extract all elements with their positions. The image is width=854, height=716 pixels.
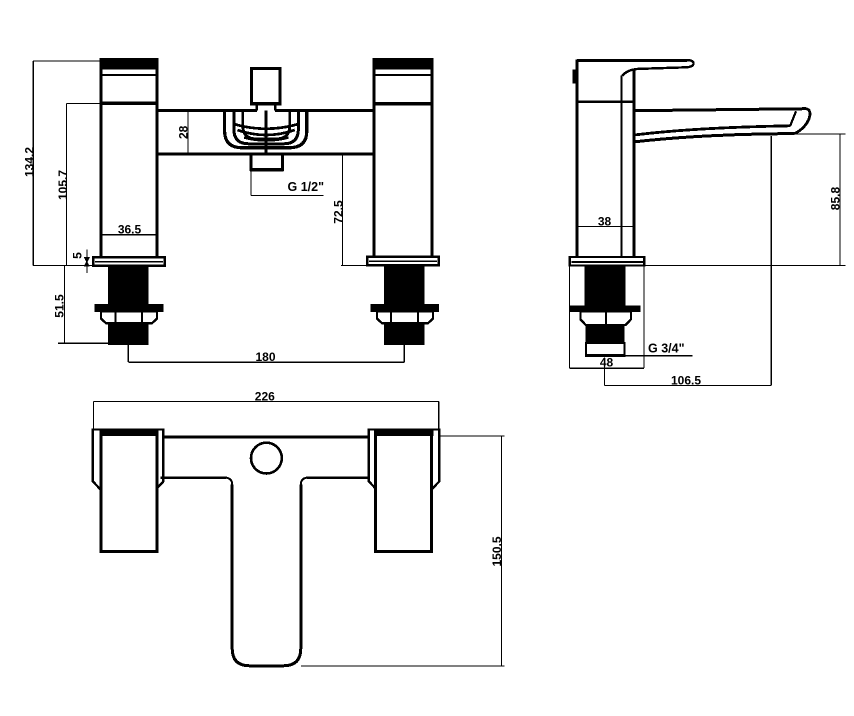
svg-text:G 1/2": G 1/2": [288, 180, 325, 194]
svg-text:72.5: 72.5: [331, 200, 345, 224]
svg-text:G 3/4": G 3/4": [648, 341, 685, 355]
svg-text:134.2: 134.2: [23, 147, 37, 177]
svg-text:51.5: 51.5: [53, 294, 67, 318]
svg-text:48: 48: [600, 356, 614, 370]
svg-text:150.5: 150.5: [490, 536, 504, 566]
svg-text:85.8: 85.8: [828, 186, 842, 210]
svg-text:106.5: 106.5: [671, 373, 701, 387]
svg-text:38: 38: [598, 214, 612, 228]
svg-text:180: 180: [255, 350, 275, 364]
svg-text:28: 28: [177, 125, 191, 139]
svg-text:105.7: 105.7: [56, 170, 70, 200]
svg-text:36.5: 36.5: [118, 223, 142, 237]
svg-text:5: 5: [71, 252, 85, 259]
svg-text:226: 226: [255, 390, 275, 404]
